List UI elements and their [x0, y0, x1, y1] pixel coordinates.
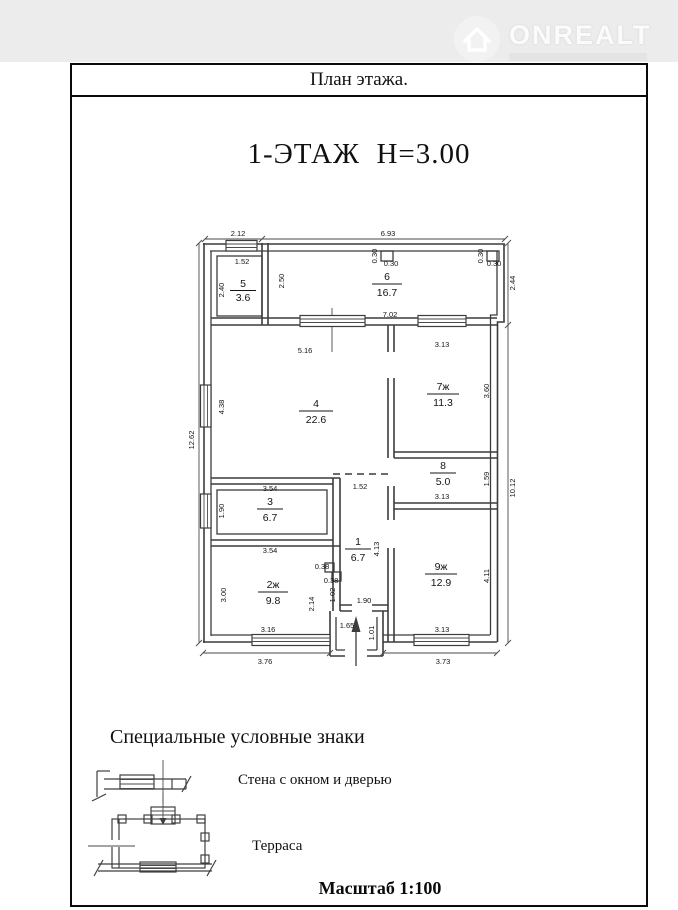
room-area: 9.8 — [266, 595, 281, 607]
room-number: 4 — [313, 398, 319, 410]
dim-label: 0.30 — [476, 249, 485, 264]
dim-label: 1.52 — [353, 482, 368, 491]
dim-label: 3.76 — [258, 657, 273, 666]
dim-label: 4.13 — [372, 542, 381, 557]
terrace-symbol — [88, 793, 216, 876]
room-area: 22.6 — [306, 414, 327, 426]
room-area: 6.7 — [351, 552, 366, 564]
floor-plan-drawing: 2.12 6.93 1.52 0.30 0.30 0.30 0.30 2.40 … — [0, 0, 678, 910]
room-area: 5.0 — [436, 476, 451, 488]
dim-label: 0.30 — [370, 249, 379, 264]
window-icon — [226, 241, 257, 252]
room-number: 7ж — [437, 381, 450, 393]
room-number: 1 — [355, 536, 361, 548]
dim-label: 3.16 — [261, 625, 276, 634]
dim-label: 0.38 — [315, 562, 330, 571]
window-icon — [414, 635, 469, 646]
dim-label: 7.02 — [383, 310, 398, 319]
onrealt-watermark: ONREALT — [452, 14, 652, 64]
room-label-7: 7ж 11.3 — [427, 381, 459, 409]
room-label-2: 2ж 9.8 — [258, 579, 288, 607]
dim-label: 2.44 — [508, 276, 517, 291]
scanned-floor-plan-page: ONREALT План этажа. 1-ЭТАЖ Н=3.00 — [0, 0, 678, 910]
dim-label: 10.12 — [508, 479, 517, 498]
room-label-3: 3 6.7 — [257, 496, 283, 524]
dim-label: 3.73 — [436, 657, 451, 666]
room-number: 5 — [240, 278, 246, 290]
dim-label: 1.65 — [340, 621, 355, 630]
partition-walls — [211, 243, 499, 656]
room-area: 12.9 — [431, 577, 452, 589]
room-number: 2ж — [267, 579, 280, 591]
window-icon — [418, 316, 466, 327]
dim-label: 3.00 — [219, 588, 228, 603]
room-area: 16.7 — [377, 287, 398, 299]
dim-label: 1.01 — [367, 626, 376, 641]
house-icon — [452, 14, 502, 64]
room-number: 3 — [267, 496, 273, 508]
dim-label: 2.14 — [307, 597, 316, 612]
watermark-text-block: ONREALT — [509, 14, 652, 61]
watermark-tagline-bar — [509, 53, 647, 61]
dim-label: 3.13 — [435, 340, 450, 349]
dim-label: 3.54 — [263, 484, 278, 493]
wall-window-door-symbol — [92, 760, 191, 803]
room-label-4: 4 22.6 — [299, 398, 333, 426]
window-icon — [252, 635, 330, 646]
dim-label: 5.16 — [298, 346, 313, 355]
dim-label: 1.52 — [235, 257, 250, 266]
dim-label: 3.13 — [435, 625, 450, 634]
window-icon — [201, 385, 212, 427]
dim-label: 1.02 — [328, 588, 337, 603]
dim-label: 2.50 — [277, 274, 286, 289]
dim-label: 0.30 — [487, 259, 502, 268]
dim-label: 3.60 — [482, 384, 491, 399]
dim-label: 4.11 — [482, 569, 491, 583]
room-number: 8 — [440, 460, 446, 472]
room-label-1: 1 6.7 — [345, 536, 371, 564]
room-label-5: 5 3.6 — [230, 278, 256, 304]
room-number: 9ж — [435, 561, 448, 573]
room-area: 11.3 — [433, 397, 453, 409]
dim-label: 1.59 — [482, 472, 491, 487]
watermark-brand: ONREALT — [509, 22, 652, 49]
room-label-6: 6 16.7 — [372, 271, 402, 299]
dim-label: 3.54 — [263, 546, 278, 555]
room-label-8: 8 5.0 — [430, 460, 456, 488]
dim-label: 4.38 — [217, 400, 226, 415]
dim-label: 2.40 — [217, 283, 226, 298]
dim-label: 6.93 — [381, 229, 396, 238]
dim-label: 0.30 — [384, 259, 399, 268]
window-icon — [201, 494, 212, 528]
dim-label: 1.90 — [357, 596, 372, 605]
dim-label: 2.12 — [231, 229, 246, 238]
room-number: 6 — [384, 271, 390, 283]
room-area: 6.7 — [263, 512, 278, 524]
dim-label: 12.62 — [187, 431, 196, 450]
dim-label: 1.90 — [217, 504, 226, 519]
room-area: 3.6 — [236, 292, 251, 304]
dim-label: 3.13 — [435, 492, 450, 501]
window-icon — [300, 316, 365, 327]
room-label-9: 9ж 12.9 — [425, 561, 457, 589]
dim-label: 0.38 — [324, 576, 339, 585]
